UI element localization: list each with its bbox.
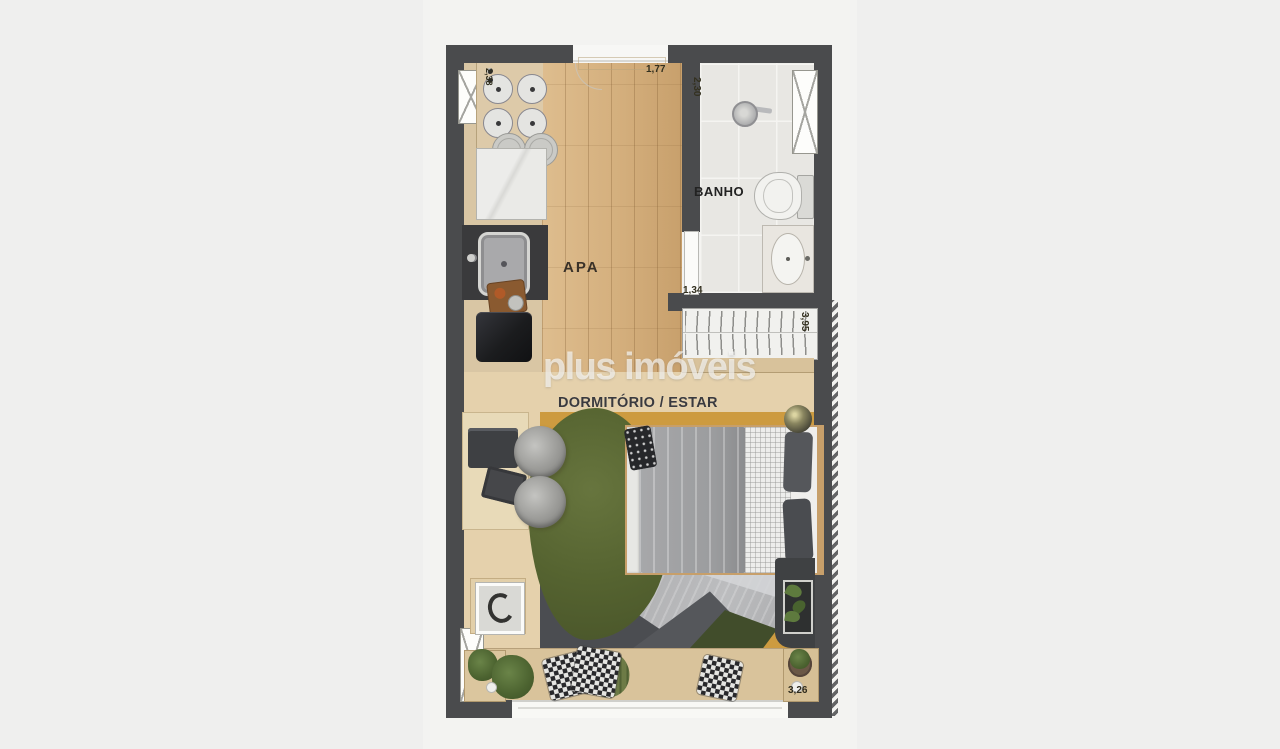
bedside-lamp <box>784 405 812 433</box>
bed <box>625 425 824 575</box>
studio-floor-plan: BANHO APA DORMITÓRIO / ESTAR 1,77 2,30 1… <box>446 45 832 718</box>
wardrobe-hangers-row <box>685 311 815 332</box>
bathroom-vanity <box>762 225 814 293</box>
toilet <box>754 172 802 220</box>
floor-plan-page: BANHO APA DORMITÓRIO / ESTAR 1,77 2,30 1… <box>0 0 1280 749</box>
terrace-plant <box>790 649 810 669</box>
dim-bathroom-length: 2,30 <box>691 77 702 96</box>
wall-top-left <box>446 45 573 63</box>
wardrobe <box>682 308 818 360</box>
bed-duvet <box>639 427 747 573</box>
desk-chair <box>514 476 566 528</box>
wardrobe-hangers-row <box>685 334 815 355</box>
checkered-pillow <box>696 654 743 701</box>
wall-bathroom-left <box>682 45 700 232</box>
room-label-bedroom-living: DORMITÓRIO / ESTAR <box>558 395 718 411</box>
shower-head <box>732 101 758 127</box>
entry-wood-floor <box>542 63 682 390</box>
vanity-basin <box>771 233 805 285</box>
oven <box>476 312 532 362</box>
wardrobe-shelf <box>682 358 814 373</box>
sliding-door-rail <box>518 707 782 709</box>
dim-kitchen-wall: 2,38 <box>484 68 494 86</box>
wall-left <box>446 45 464 718</box>
terrace-sliding-door <box>512 700 788 718</box>
cooktop-burner <box>517 74 547 104</box>
refrigerator <box>476 148 547 220</box>
bed-pillow <box>782 498 813 561</box>
dim-terrace-width: 3,26 <box>788 685 807 696</box>
kitchen-faucet <box>467 254 475 262</box>
terrace-plant <box>492 655 534 699</box>
room-label-bathroom: BANHO <box>694 184 744 199</box>
wall-bottom-left <box>446 700 512 718</box>
room-label-entry: APA <box>563 259 600 276</box>
plant-pot <box>486 682 497 693</box>
checkered-pillow <box>570 646 621 699</box>
wall-bottom-right <box>788 700 832 718</box>
cutting-board <box>486 279 528 316</box>
monitor <box>468 428 518 468</box>
dim-wardrobe-wall: 3,95 <box>799 312 810 331</box>
bed-pillow <box>783 432 813 493</box>
vanity-tap <box>805 256 810 261</box>
wardrobe-divider <box>683 332 817 333</box>
dim-entry-width: 1,77 <box>646 64 665 75</box>
small-plate <box>507 294 525 312</box>
dim-bathroom-door: 1,34 <box>683 285 702 296</box>
food-item <box>494 287 506 299</box>
desk-chair <box>514 426 566 478</box>
wall-exterior-hatch <box>830 300 838 716</box>
picture-frame <box>476 583 524 634</box>
bathroom-window <box>792 70 818 154</box>
